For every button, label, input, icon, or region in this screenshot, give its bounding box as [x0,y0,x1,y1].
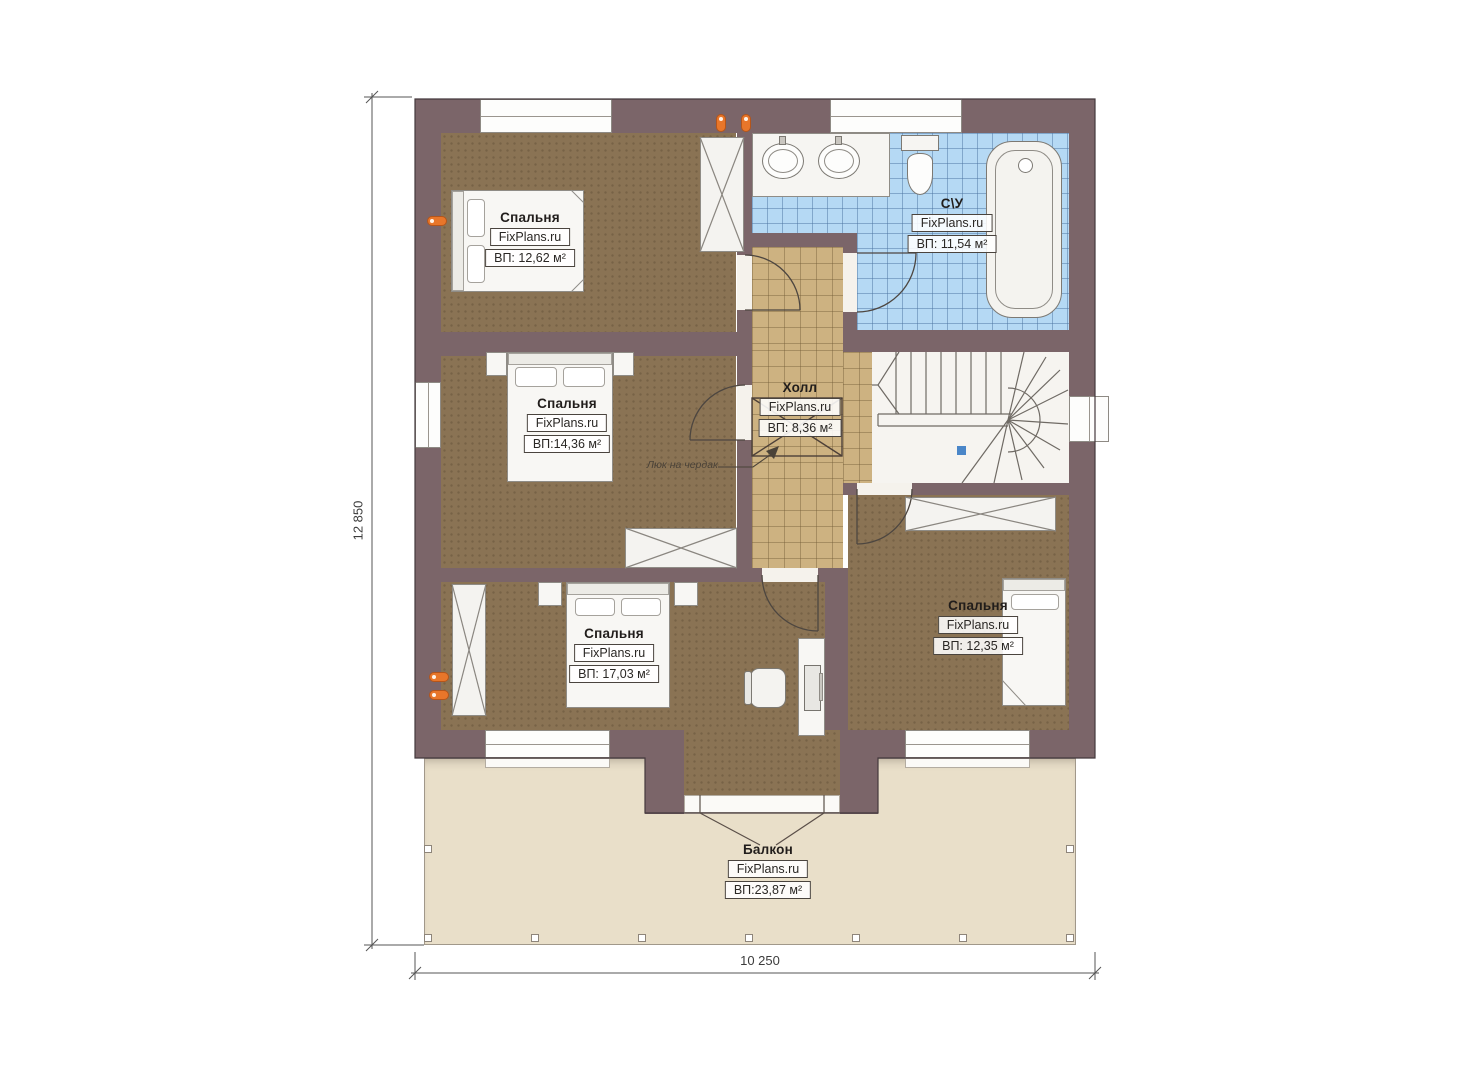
floor-hall-stub [843,352,872,483]
window [830,99,962,133]
room-watermark: FixPlans.ru [728,860,809,878]
room-area: ВП: 11,54 м² [908,235,997,253]
room-area: ВП: 12,62 м² [485,249,575,267]
closet [700,137,744,252]
faucet-icon [835,136,842,145]
room-label-bedroom-top-left: Спальня FixPlans.ru ВП: 12,62 м² [485,210,575,267]
room-label-bedroom-middle-left: Спальня FixPlans.ru ВП:14,36 м² [524,396,610,453]
floor-hall-upper [752,247,843,350]
room-area: ВП:14,36 м² [524,435,610,453]
heater-marker-icon [429,690,449,700]
dimension-label-height: 12 850 [351,481,366,561]
balcony-door-sill [684,795,840,813]
nightstand [486,352,507,376]
heater-marker-icon [741,114,751,132]
room-label-balcony: Балкон FixPlans.ru ВП:23,87 м² [725,842,811,899]
keyboard-icon [819,673,823,701]
nightstand [613,352,634,376]
room-watermark: FixPlans.ru [527,414,608,432]
room-watermark: FixPlans.ru [912,214,993,232]
railing-post [959,934,967,942]
desk [798,638,825,736]
window-sill [485,758,610,768]
office-chair [750,668,786,708]
room-name: Спальня [537,396,597,411]
sink [818,143,860,179]
closet [905,497,1056,531]
heater-marker-icon [716,114,726,132]
attic-hatch-label: Люк на чердак [640,459,718,471]
room-watermark: FixPlans.ru [574,644,655,662]
door-opening [737,385,752,440]
room-area: ВП: 12,35 м² [933,637,1023,655]
room-name: Спальня [500,210,560,225]
floor-plan-canvas: Спальня FixPlans.ru ВП: 12,62 м² С\У Fix… [0,0,1474,1080]
toilet-bowl [907,153,933,195]
floor-bay [684,730,840,795]
window [905,730,1030,758]
nightstand [674,582,698,606]
railing-post [531,934,539,942]
room-area: ВП: 17,03 м² [569,665,659,683]
room-area: ВП:23,87 м² [725,881,811,899]
room-name: Холл [783,380,818,395]
toilet [901,135,939,151]
room-label-bedroom-bottom-right: Спальня FixPlans.ru ВП: 12,35 м² [933,598,1023,655]
door-opening [762,568,818,582]
closet [625,528,737,568]
window-sill [905,758,1030,768]
room-name: Спальня [948,598,1008,613]
heater-marker-icon [427,216,447,226]
bathtub [986,141,1062,318]
wall-interior-h4 [415,568,752,582]
wall-interior-v3 [825,568,848,730]
railing-post [638,934,646,942]
chair-back [744,671,752,705]
railing-post [852,934,860,942]
railing-post [1066,845,1074,853]
window [415,382,441,448]
sink [762,143,804,179]
door-opening [737,255,752,310]
room-watermark: FixPlans.ru [490,228,571,246]
floor-stairwell [872,352,1069,483]
dimension-label-width: 10 250 [720,953,800,968]
room-area: ВП: 8,36 м² [759,419,842,437]
faucet-icon [779,136,786,145]
window [485,730,610,758]
room-watermark: FixPlans.ru [760,398,841,416]
room-name: С\У [941,196,964,211]
nightstand [538,582,562,606]
heater-marker-icon [429,672,449,682]
closet [452,584,486,716]
railing-post [424,845,432,853]
room-watermark: FixPlans.ru [938,616,1019,634]
railing-post [424,934,432,942]
window [1069,396,1109,442]
window [480,99,612,133]
wall-interior-h2 [843,330,1069,352]
railing-post [1066,934,1074,942]
room-label-hall: Холл FixPlans.ru ВП: 8,36 м² [759,380,842,437]
wall-bay-pier-right [840,730,878,814]
wall-bay-pier-left [645,730,684,814]
door-opening [843,253,857,312]
railing-post [745,934,753,942]
room-label-bathroom: С\У FixPlans.ru ВП: 11,54 м² [908,196,997,253]
room-name: Спальня [584,626,644,641]
room-name: Балкон [743,842,793,857]
room-label-bedroom-bottom-center: Спальня FixPlans.ru ВП: 17,03 м² [569,626,659,683]
wall-hall-top [737,233,848,247]
door-opening [857,483,912,495]
